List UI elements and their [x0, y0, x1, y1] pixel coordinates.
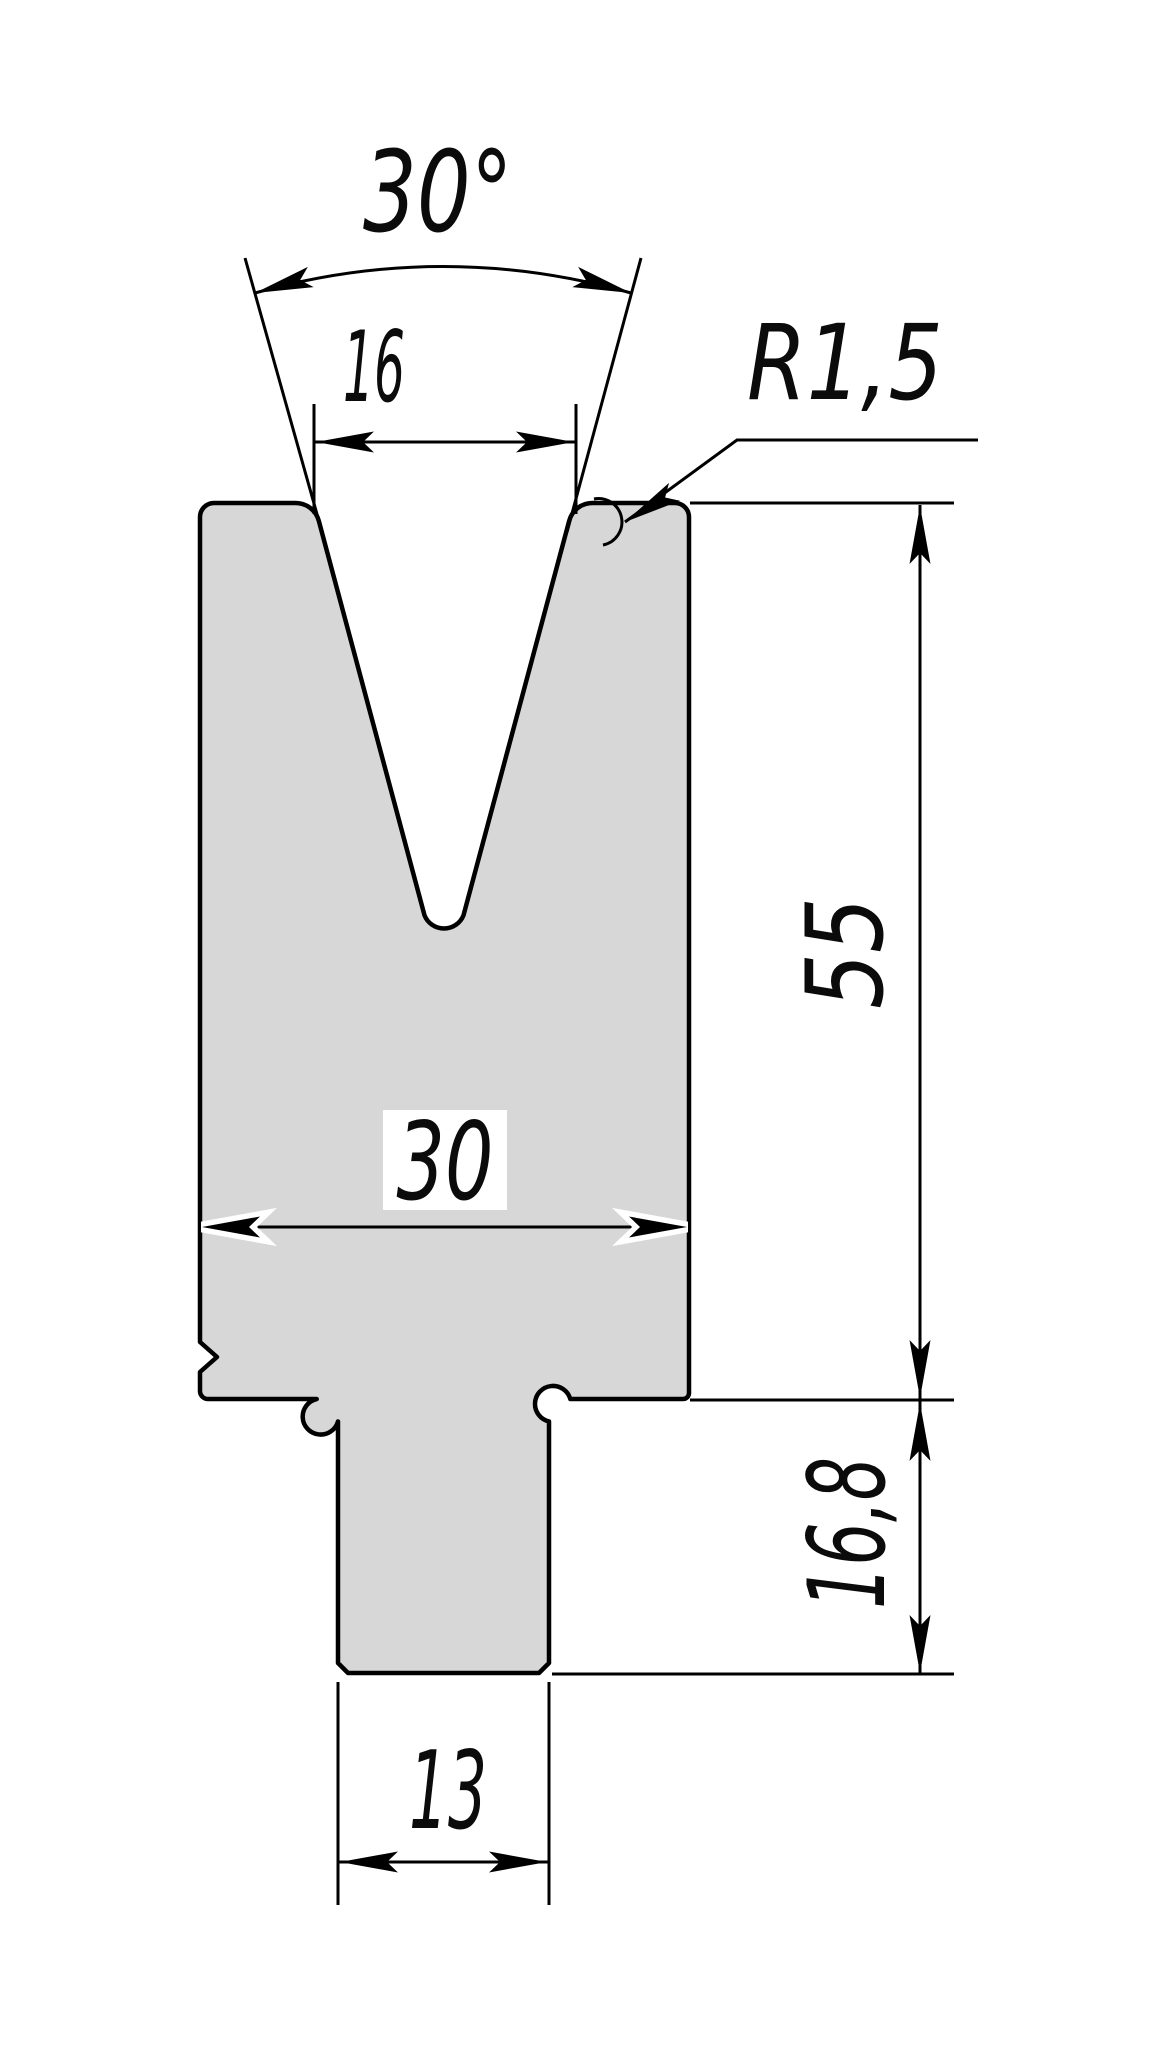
body-height-value: 55 — [784, 897, 907, 1009]
drawing-canvas: 30° 16 R1,5 55 16,8 30 — [0, 0, 1150, 2048]
angle-value: 30° — [363, 128, 513, 258]
radius-value: R1,5 — [747, 302, 943, 424]
opening-value: 16 — [343, 311, 405, 425]
technical-drawing: 30° 16 R1,5 55 16,8 30 — [0, 0, 1150, 2048]
body-width-value: 30 — [397, 1100, 494, 1225]
tang-height-value: 16,8 — [786, 1457, 909, 1609]
tang-width-value: 13 — [409, 1729, 487, 1854]
